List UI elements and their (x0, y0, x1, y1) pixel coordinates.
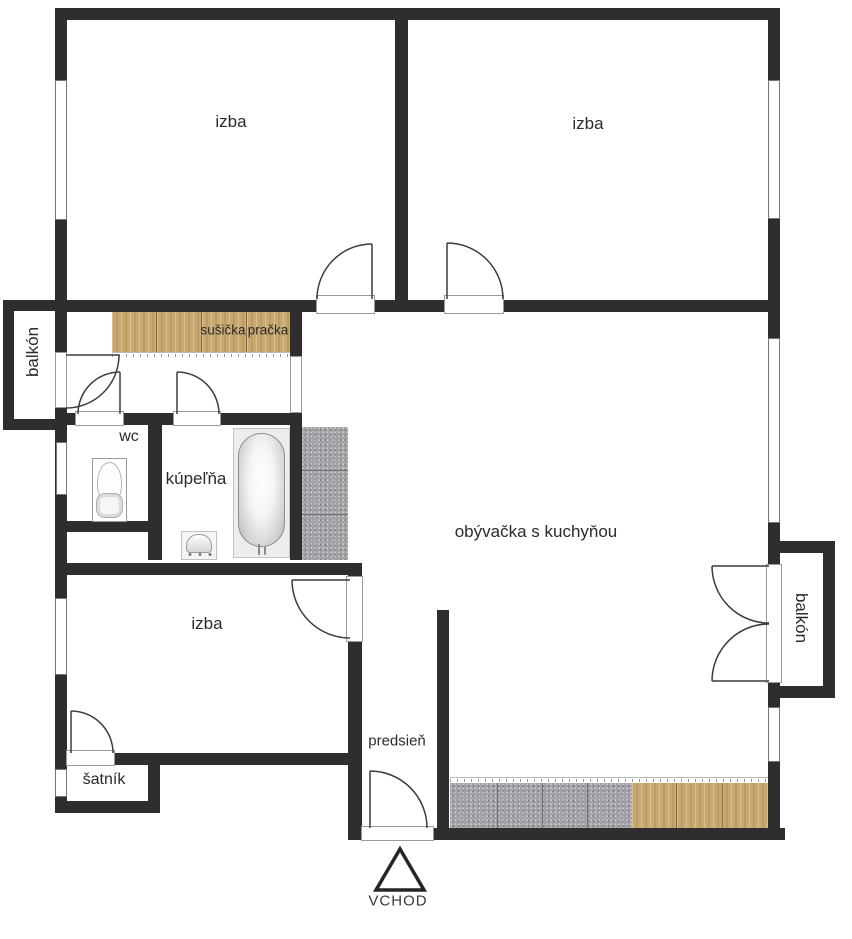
room-label-balcony-right: balkón (791, 593, 811, 643)
counter-panel (498, 783, 543, 828)
wall (768, 523, 780, 566)
door-swing (292, 580, 350, 638)
entrance-label: VCHOD (368, 893, 427, 910)
door-swing (712, 624, 769, 681)
counter-panel (588, 783, 632, 828)
wall (433, 828, 785, 840)
door-swing (712, 566, 769, 623)
wall (219, 413, 302, 425)
door-opening (444, 295, 504, 314)
bathtub-basin (238, 433, 285, 547)
wall (55, 413, 77, 425)
door-swing (66, 355, 119, 408)
cabinet-panel (157, 312, 202, 352)
room-label-bathroom: kúpeľňa (166, 469, 227, 489)
counter-edge (112, 352, 290, 359)
room-label-living-kitchen: obývačka s kuchyňou (455, 522, 618, 542)
counter-panels (450, 783, 632, 828)
room-label-izba-bottom-left: izba (191, 614, 222, 634)
floor-plan: izba izba izba obývačka s kuchyňou kúpeľ… (0, 0, 852, 939)
wall (55, 521, 162, 532)
balcony-wall (780, 686, 835, 698)
room-label-hallway: predsieň (368, 733, 426, 750)
wall (395, 20, 408, 301)
door-opening (55, 352, 67, 408)
tile-divider (302, 514, 348, 515)
bathtub-icon (233, 428, 290, 558)
balcony-wall (823, 541, 835, 698)
counter-panel (632, 783, 677, 828)
wall (768, 762, 780, 840)
room-label-closet: šatník (83, 771, 126, 789)
wall (124, 413, 177, 425)
wall (55, 8, 780, 20)
room-label-wc: wc (119, 428, 139, 446)
door-opening (66, 750, 115, 766)
sink-bowl (186, 534, 212, 553)
window (768, 338, 780, 523)
balcony-wall (3, 419, 55, 430)
wall (55, 801, 160, 813)
wall (290, 312, 302, 356)
counter-panel (677, 783, 723, 828)
door-opening (173, 411, 221, 426)
wall (113, 753, 350, 765)
tile-divider (302, 470, 348, 471)
passage-opening (290, 356, 302, 413)
wall (148, 765, 160, 813)
door-swing (317, 244, 372, 299)
counter-panel (723, 783, 768, 828)
door-swing (177, 372, 219, 414)
window (55, 598, 67, 675)
balcony-wall (3, 300, 55, 311)
wall (348, 640, 362, 828)
wall (148, 425, 162, 560)
appliance-label-washer: pračka (248, 323, 289, 338)
room-label-izba-top-right: izba (572, 114, 603, 134)
door-opening (316, 295, 375, 314)
door-swing (71, 711, 113, 753)
counter-panel (543, 783, 588, 828)
door-swing (370, 771, 427, 828)
window (768, 80, 780, 219)
entrance-triangle-icon (376, 849, 424, 890)
wall (290, 425, 302, 560)
wall (768, 681, 780, 707)
door-swing (78, 372, 120, 414)
wall (55, 312, 67, 352)
kitchen-tile-strip (302, 427, 348, 560)
kitchen-counter-wood (632, 783, 768, 828)
door-opening (346, 576, 363, 642)
door-opening (75, 411, 124, 426)
counter-panels (632, 783, 768, 828)
wall (55, 563, 362, 575)
window (768, 707, 780, 762)
bathtub-drain (256, 544, 268, 555)
toilet-icon (92, 458, 127, 522)
wall (55, 300, 780, 312)
sink-taps (182, 552, 216, 557)
balcony-wall (3, 300, 14, 430)
wall (768, 312, 780, 338)
room-label-izba-top-left: izba (215, 112, 246, 132)
toilet-seat (96, 493, 123, 518)
counter-panel (450, 783, 498, 828)
window (55, 769, 67, 797)
balcony-door-opening (766, 564, 782, 683)
kitchen-counter-gray (450, 783, 632, 828)
window (56, 442, 67, 495)
door-swing (447, 243, 503, 299)
room-label-balcony-left: balkón (23, 327, 43, 377)
cabinet-panel (112, 312, 157, 352)
sink-icon (181, 531, 217, 560)
appliance-label-dryer: sušička (200, 323, 245, 338)
window (55, 80, 67, 220)
entrance-door-opening (361, 826, 434, 841)
wall (437, 610, 449, 828)
